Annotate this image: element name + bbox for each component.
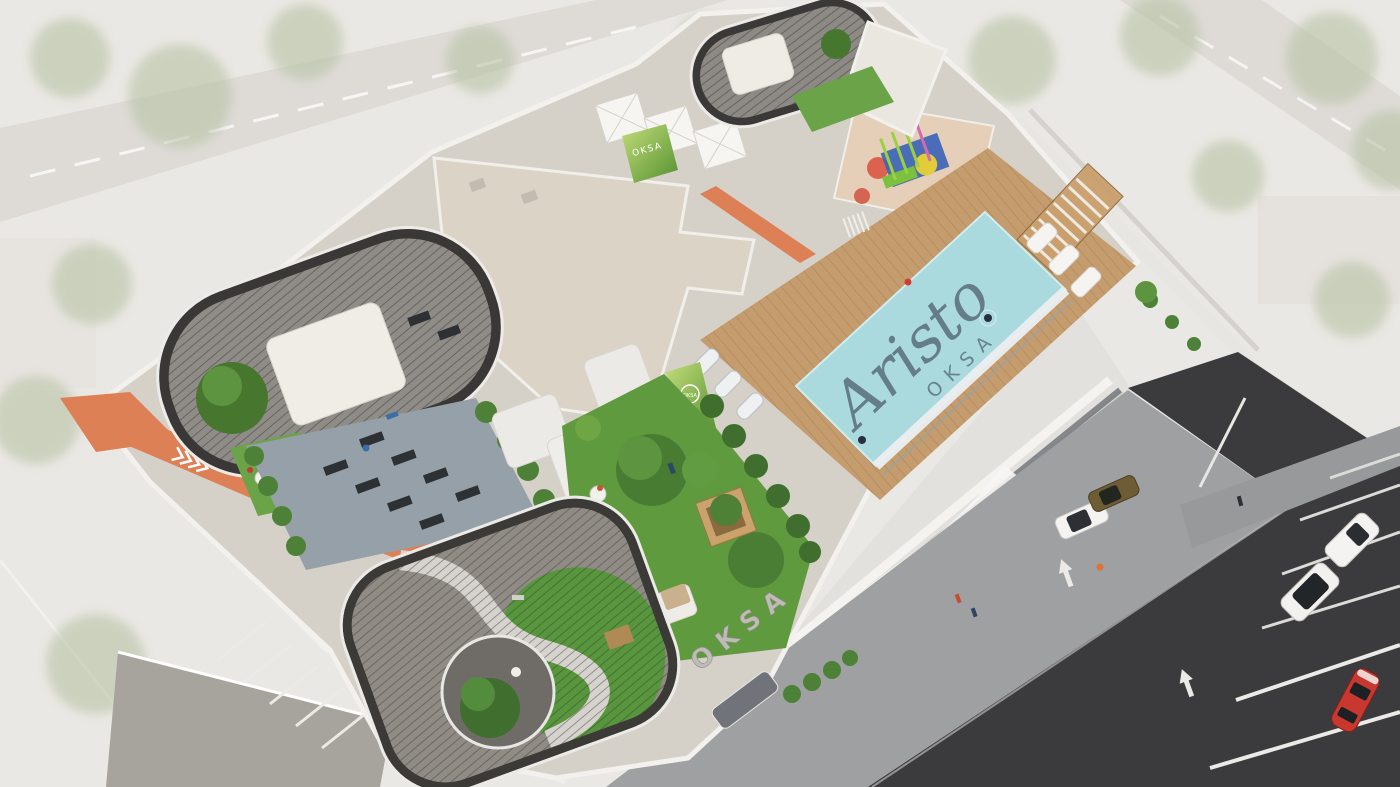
- person-lying: [512, 595, 524, 600]
- swimmer: [984, 314, 992, 322]
- aerial-rendering: OKSA: [0, 0, 1400, 787]
- person-lawn: [247, 467, 253, 473]
- person-pool-deck: [905, 279, 912, 286]
- potted-palm: [575, 415, 601, 441]
- person-gym: [363, 445, 370, 452]
- garden-tree-2: [728, 532, 784, 588]
- swimmer-2: [858, 436, 866, 444]
- render-canvas: OKSA: [0, 0, 1400, 787]
- person-seated: [597, 485, 603, 491]
- void-table: [511, 667, 521, 677]
- traffic-cone: [1097, 564, 1104, 571]
